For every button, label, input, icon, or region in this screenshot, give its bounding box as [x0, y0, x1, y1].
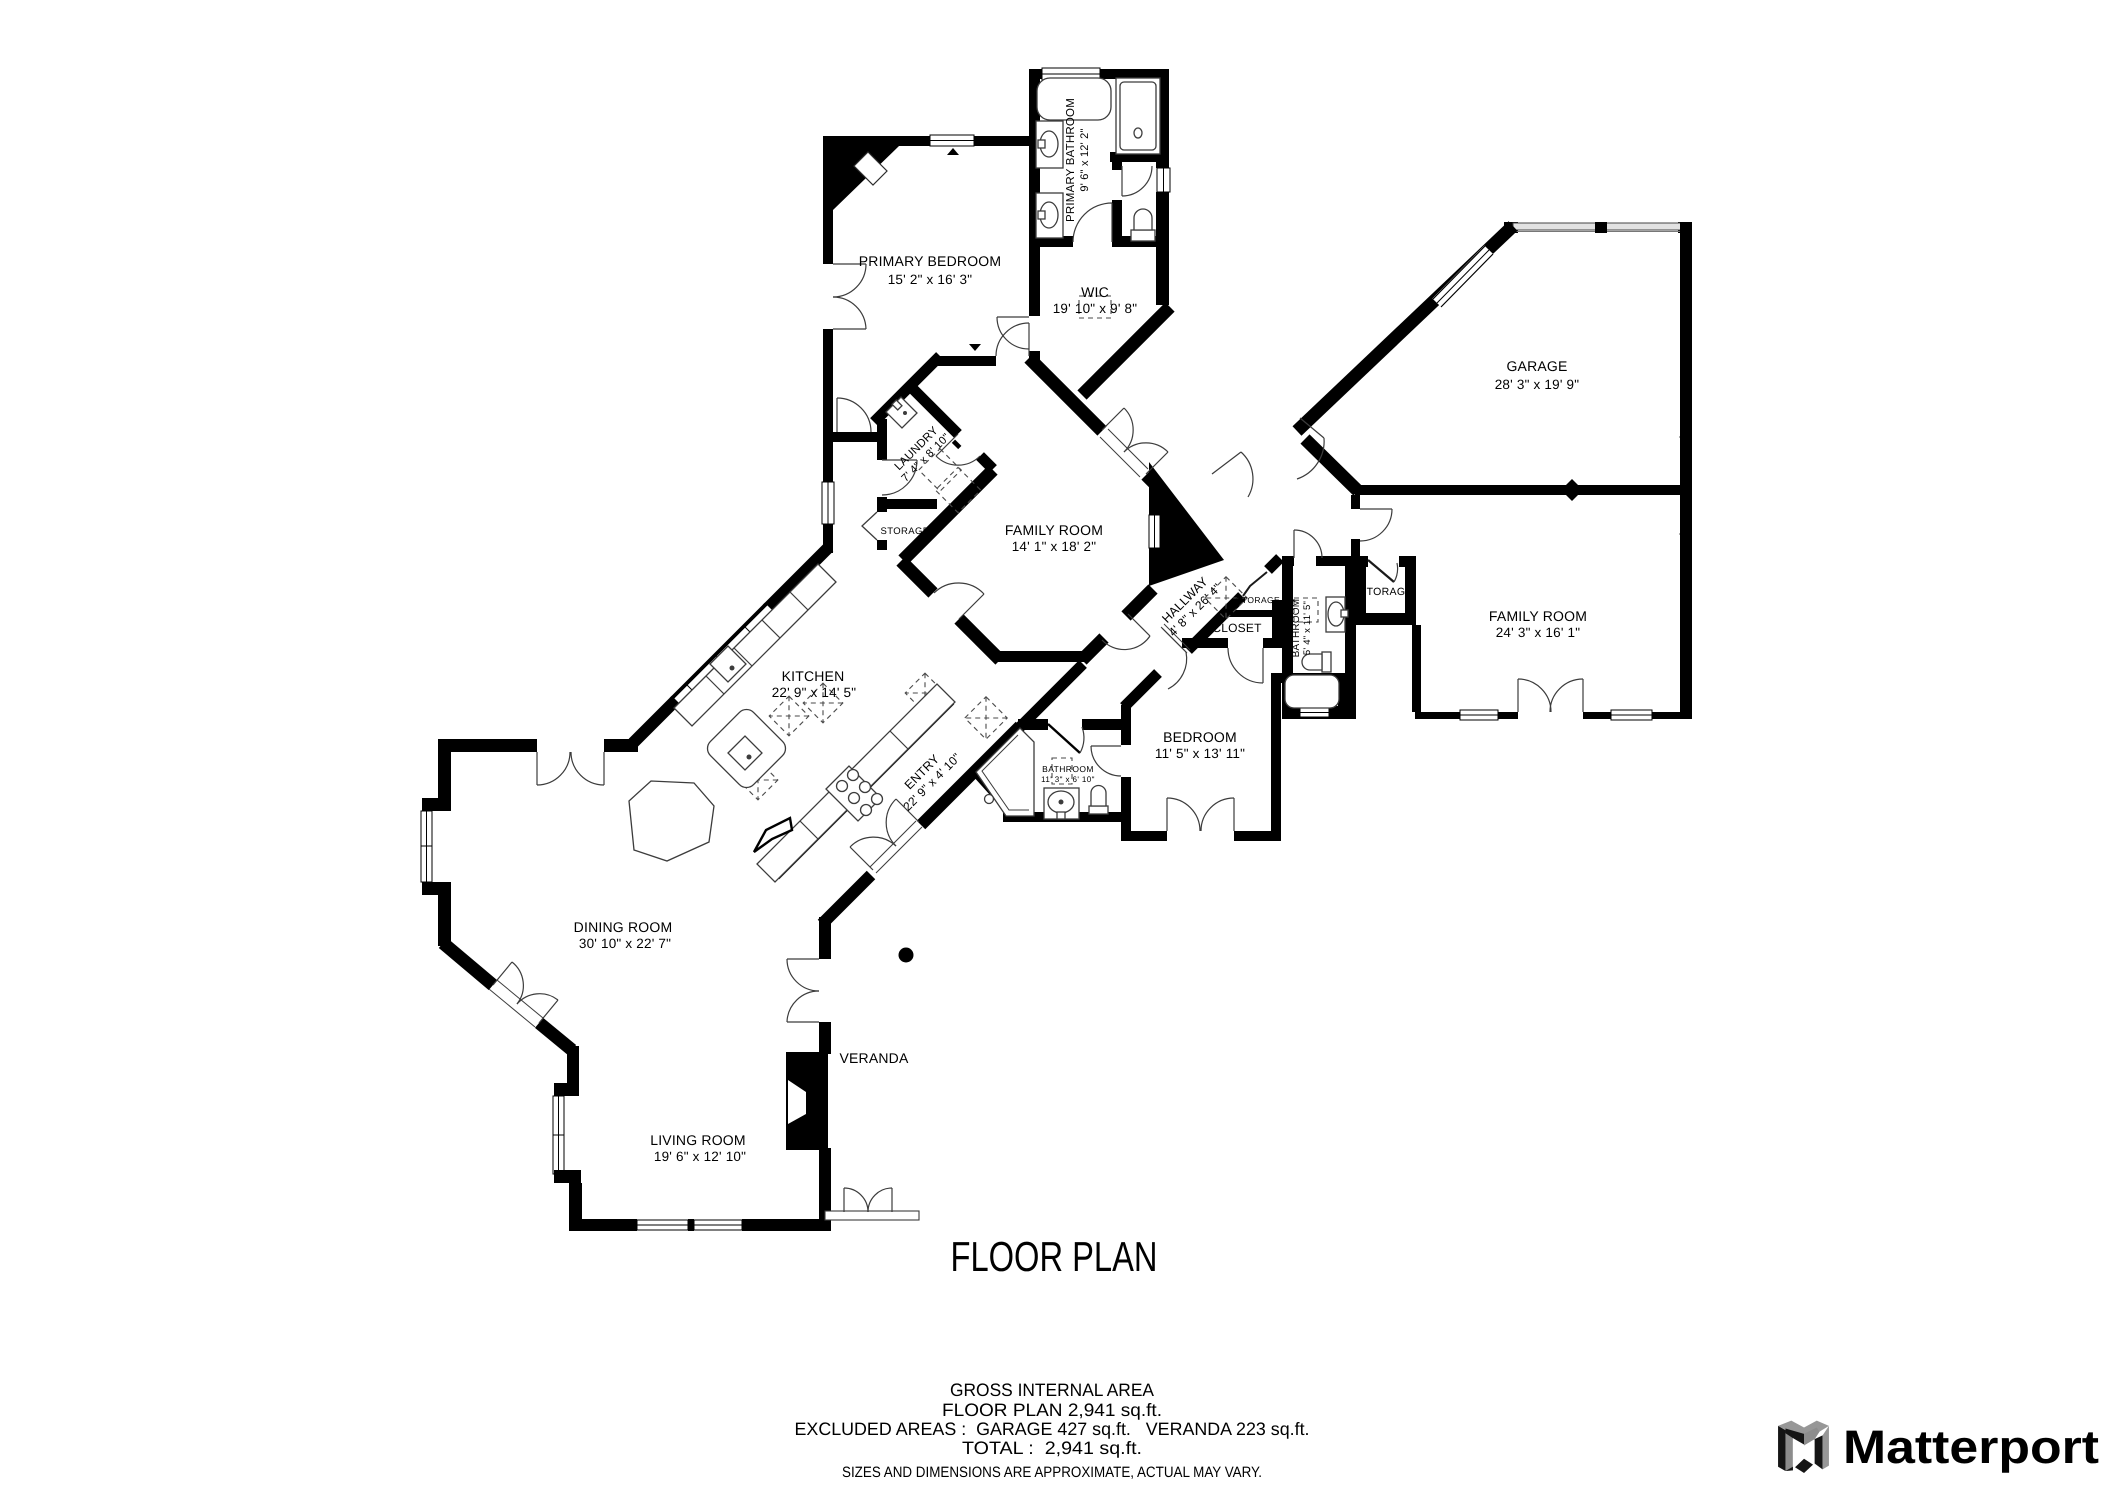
svg-text:30' 10" x 22' 7": 30' 10" x 22' 7": [579, 936, 671, 951]
svg-text:19' 10" x 9' 8": 19' 10" x 9' 8": [1053, 301, 1138, 316]
svg-text:15' 2" x 16' 3": 15' 2" x 16' 3": [888, 272, 973, 287]
svg-text:BEDROOM: BEDROOM: [1163, 729, 1237, 745]
svg-text:11' 3" x 6' 10": 11' 3" x 6' 10": [1041, 775, 1095, 784]
svg-text:STORAGE: STORAGE: [1359, 586, 1412, 598]
svg-text:FAMILY ROOM: FAMILY ROOM: [1005, 522, 1103, 538]
svg-text:FLOOR PLAN: FLOOR PLAN: [951, 1233, 1158, 1280]
svg-text:GROSS INTERNAL AREA: GROSS INTERNAL AREA: [950, 1380, 1154, 1400]
svg-text:STORAGE: STORAGE: [880, 526, 929, 537]
svg-text:CLOSET: CLOSET: [1212, 621, 1262, 635]
svg-text:22' 9" x 14' 5": 22' 9" x 14' 5": [772, 685, 857, 700]
svg-text:11' 5" x 13' 11": 11' 5" x 13' 11": [1155, 746, 1245, 761]
svg-text:Matterport: Matterport: [1843, 1420, 2099, 1473]
svg-text:EXCLUDED AREAS : GARAGE 427 s: EXCLUDED AREAS : GARAGE 427 sq.ft. VERAN…: [795, 1419, 1310, 1439]
svg-text:LIVING ROOM: LIVING ROOM: [650, 1132, 746, 1148]
svg-text:WIC: WIC: [1081, 284, 1109, 300]
svg-text:DINING ROOM: DINING ROOM: [574, 919, 673, 935]
svg-text:FAMILY ROOM: FAMILY ROOM: [1489, 608, 1587, 624]
svg-text:BATHROOM: BATHROOM: [1291, 599, 1302, 658]
svg-text:24' 3" x 16' 1": 24' 3" x 16' 1": [1496, 625, 1581, 640]
svg-text:VERANDA: VERANDA: [839, 1050, 909, 1066]
svg-text:19' 6" x 12' 10": 19' 6" x 12' 10": [654, 1149, 746, 1164]
svg-text:FLOOR PLAN 2,941 sq.ft.: FLOOR PLAN 2,941 sq.ft.: [942, 1400, 1162, 1420]
svg-text:PRIMARY BATHROOM: PRIMARY BATHROOM: [1065, 98, 1077, 222]
svg-text:GARAGE: GARAGE: [1506, 358, 1567, 374]
svg-text:KITCHEN: KITCHEN: [782, 668, 845, 684]
svg-text:PRIMARY BEDROOM: PRIMARY BEDROOM: [859, 253, 1002, 269]
svg-text:9' 6" x 12' 2": 9' 6" x 12' 2": [1079, 128, 1091, 191]
svg-text:TOTAL : 2,941 sq.ft.: TOTAL : 2,941 sq.ft.: [962, 1438, 1142, 1458]
svg-text:BATHROOM: BATHROOM: [1042, 764, 1094, 774]
svg-text:STORAGE: STORAGE: [1236, 595, 1280, 605]
svg-text:14' 1" x 18' 2": 14' 1" x 18' 2": [1012, 539, 1097, 554]
svg-text:SIZES AND DIMENSIONS ARE APPRO: SIZES AND DIMENSIONS ARE APPROXIMATE, AC…: [842, 1464, 1262, 1481]
svg-text:28' 3" x 19' 9": 28' 3" x 19' 9": [1495, 377, 1580, 392]
svg-text:5' 4" x 11' 5": 5' 4" x 11' 5": [1302, 601, 1313, 655]
